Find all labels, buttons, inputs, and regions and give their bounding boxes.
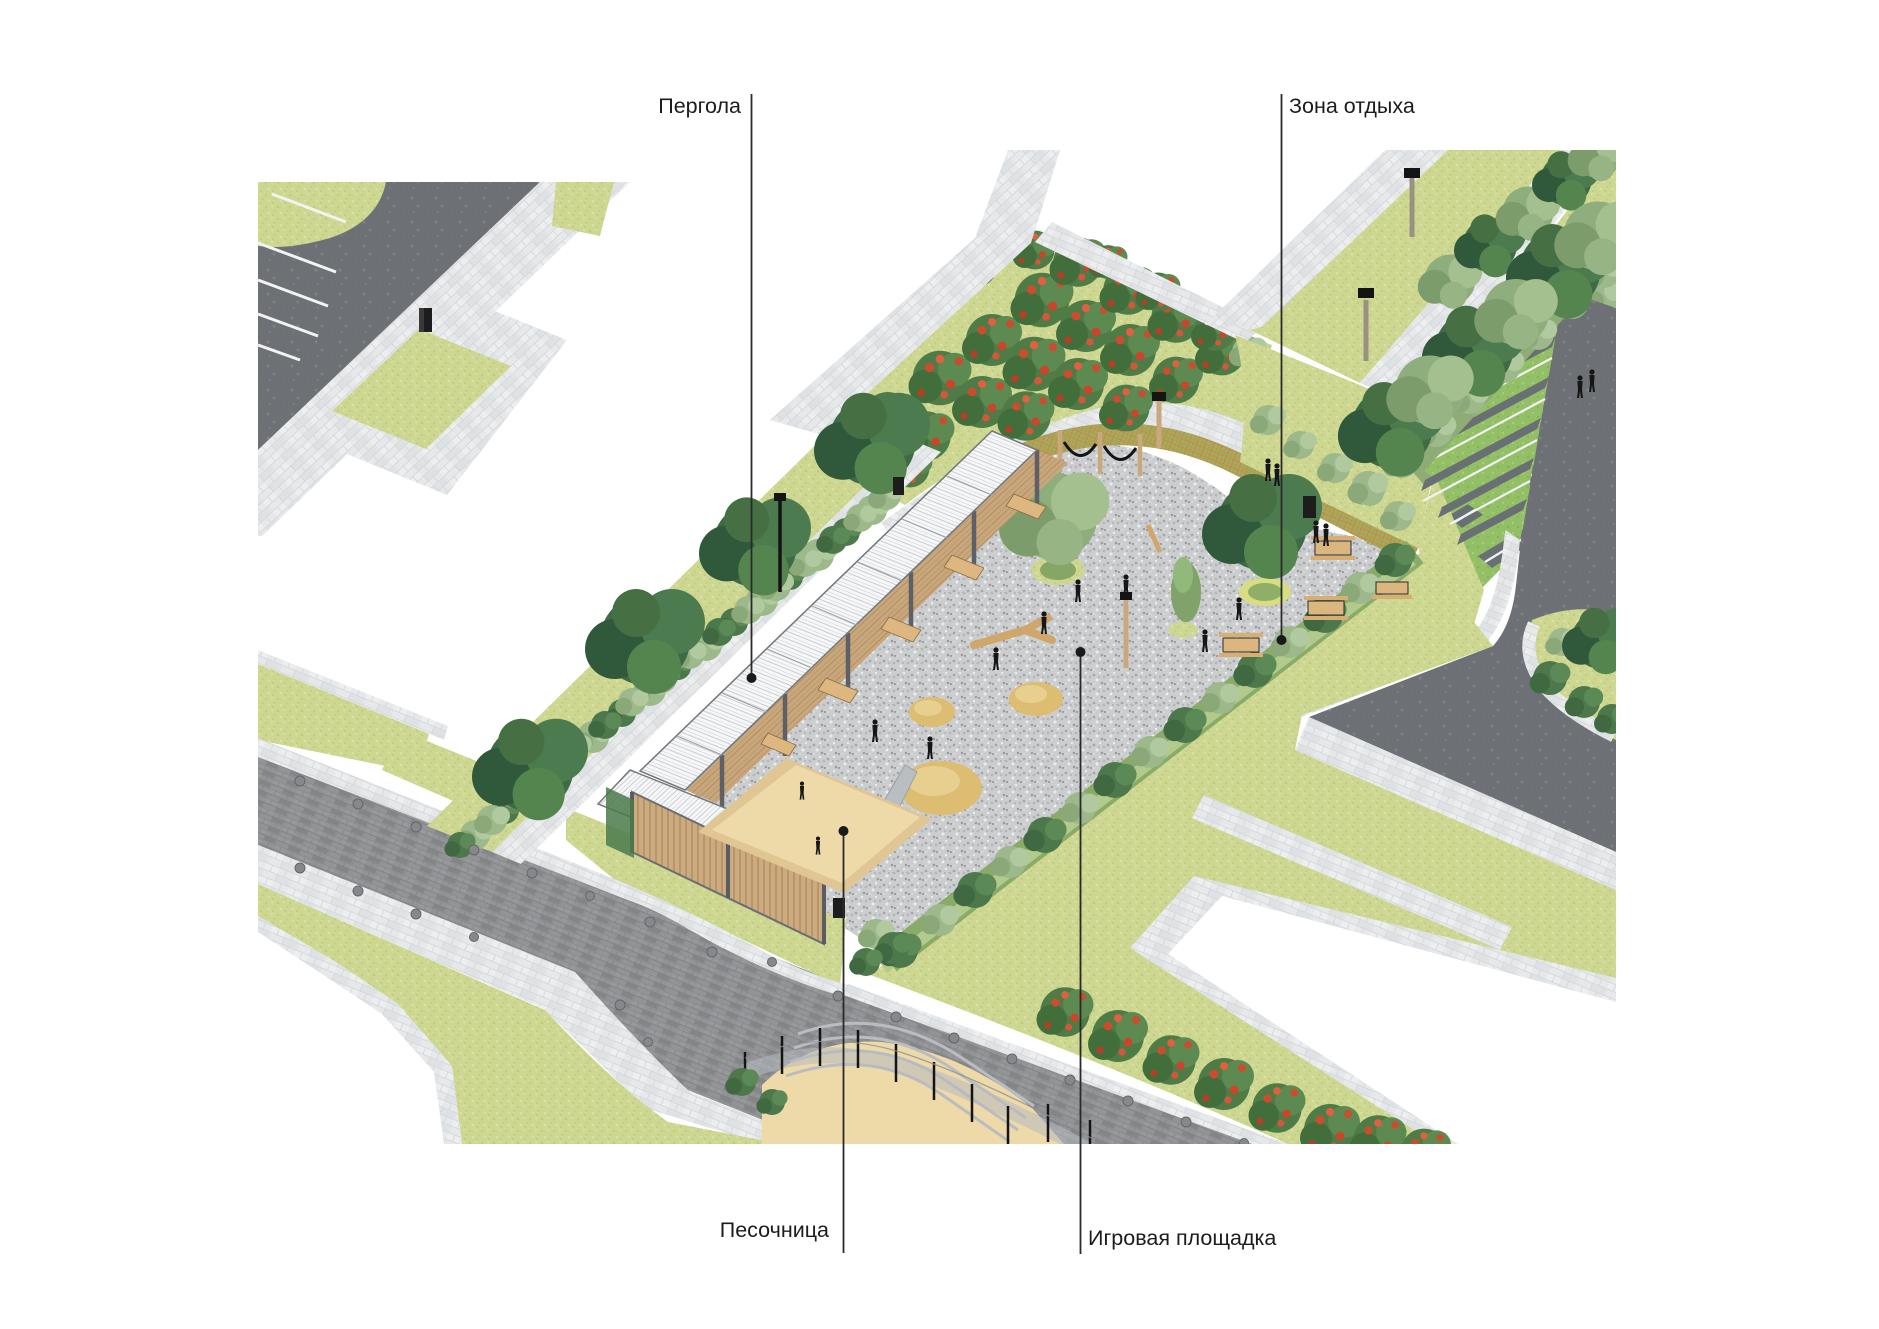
svg-text:Пергола: Пергола: [658, 94, 741, 118]
svg-text:Зона отдыха: Зона отдыха: [1289, 94, 1415, 118]
svg-text:Песочница: Песочница: [720, 1218, 829, 1242]
svg-text:Игровая площадка: Игровая площадка: [1088, 1226, 1276, 1250]
